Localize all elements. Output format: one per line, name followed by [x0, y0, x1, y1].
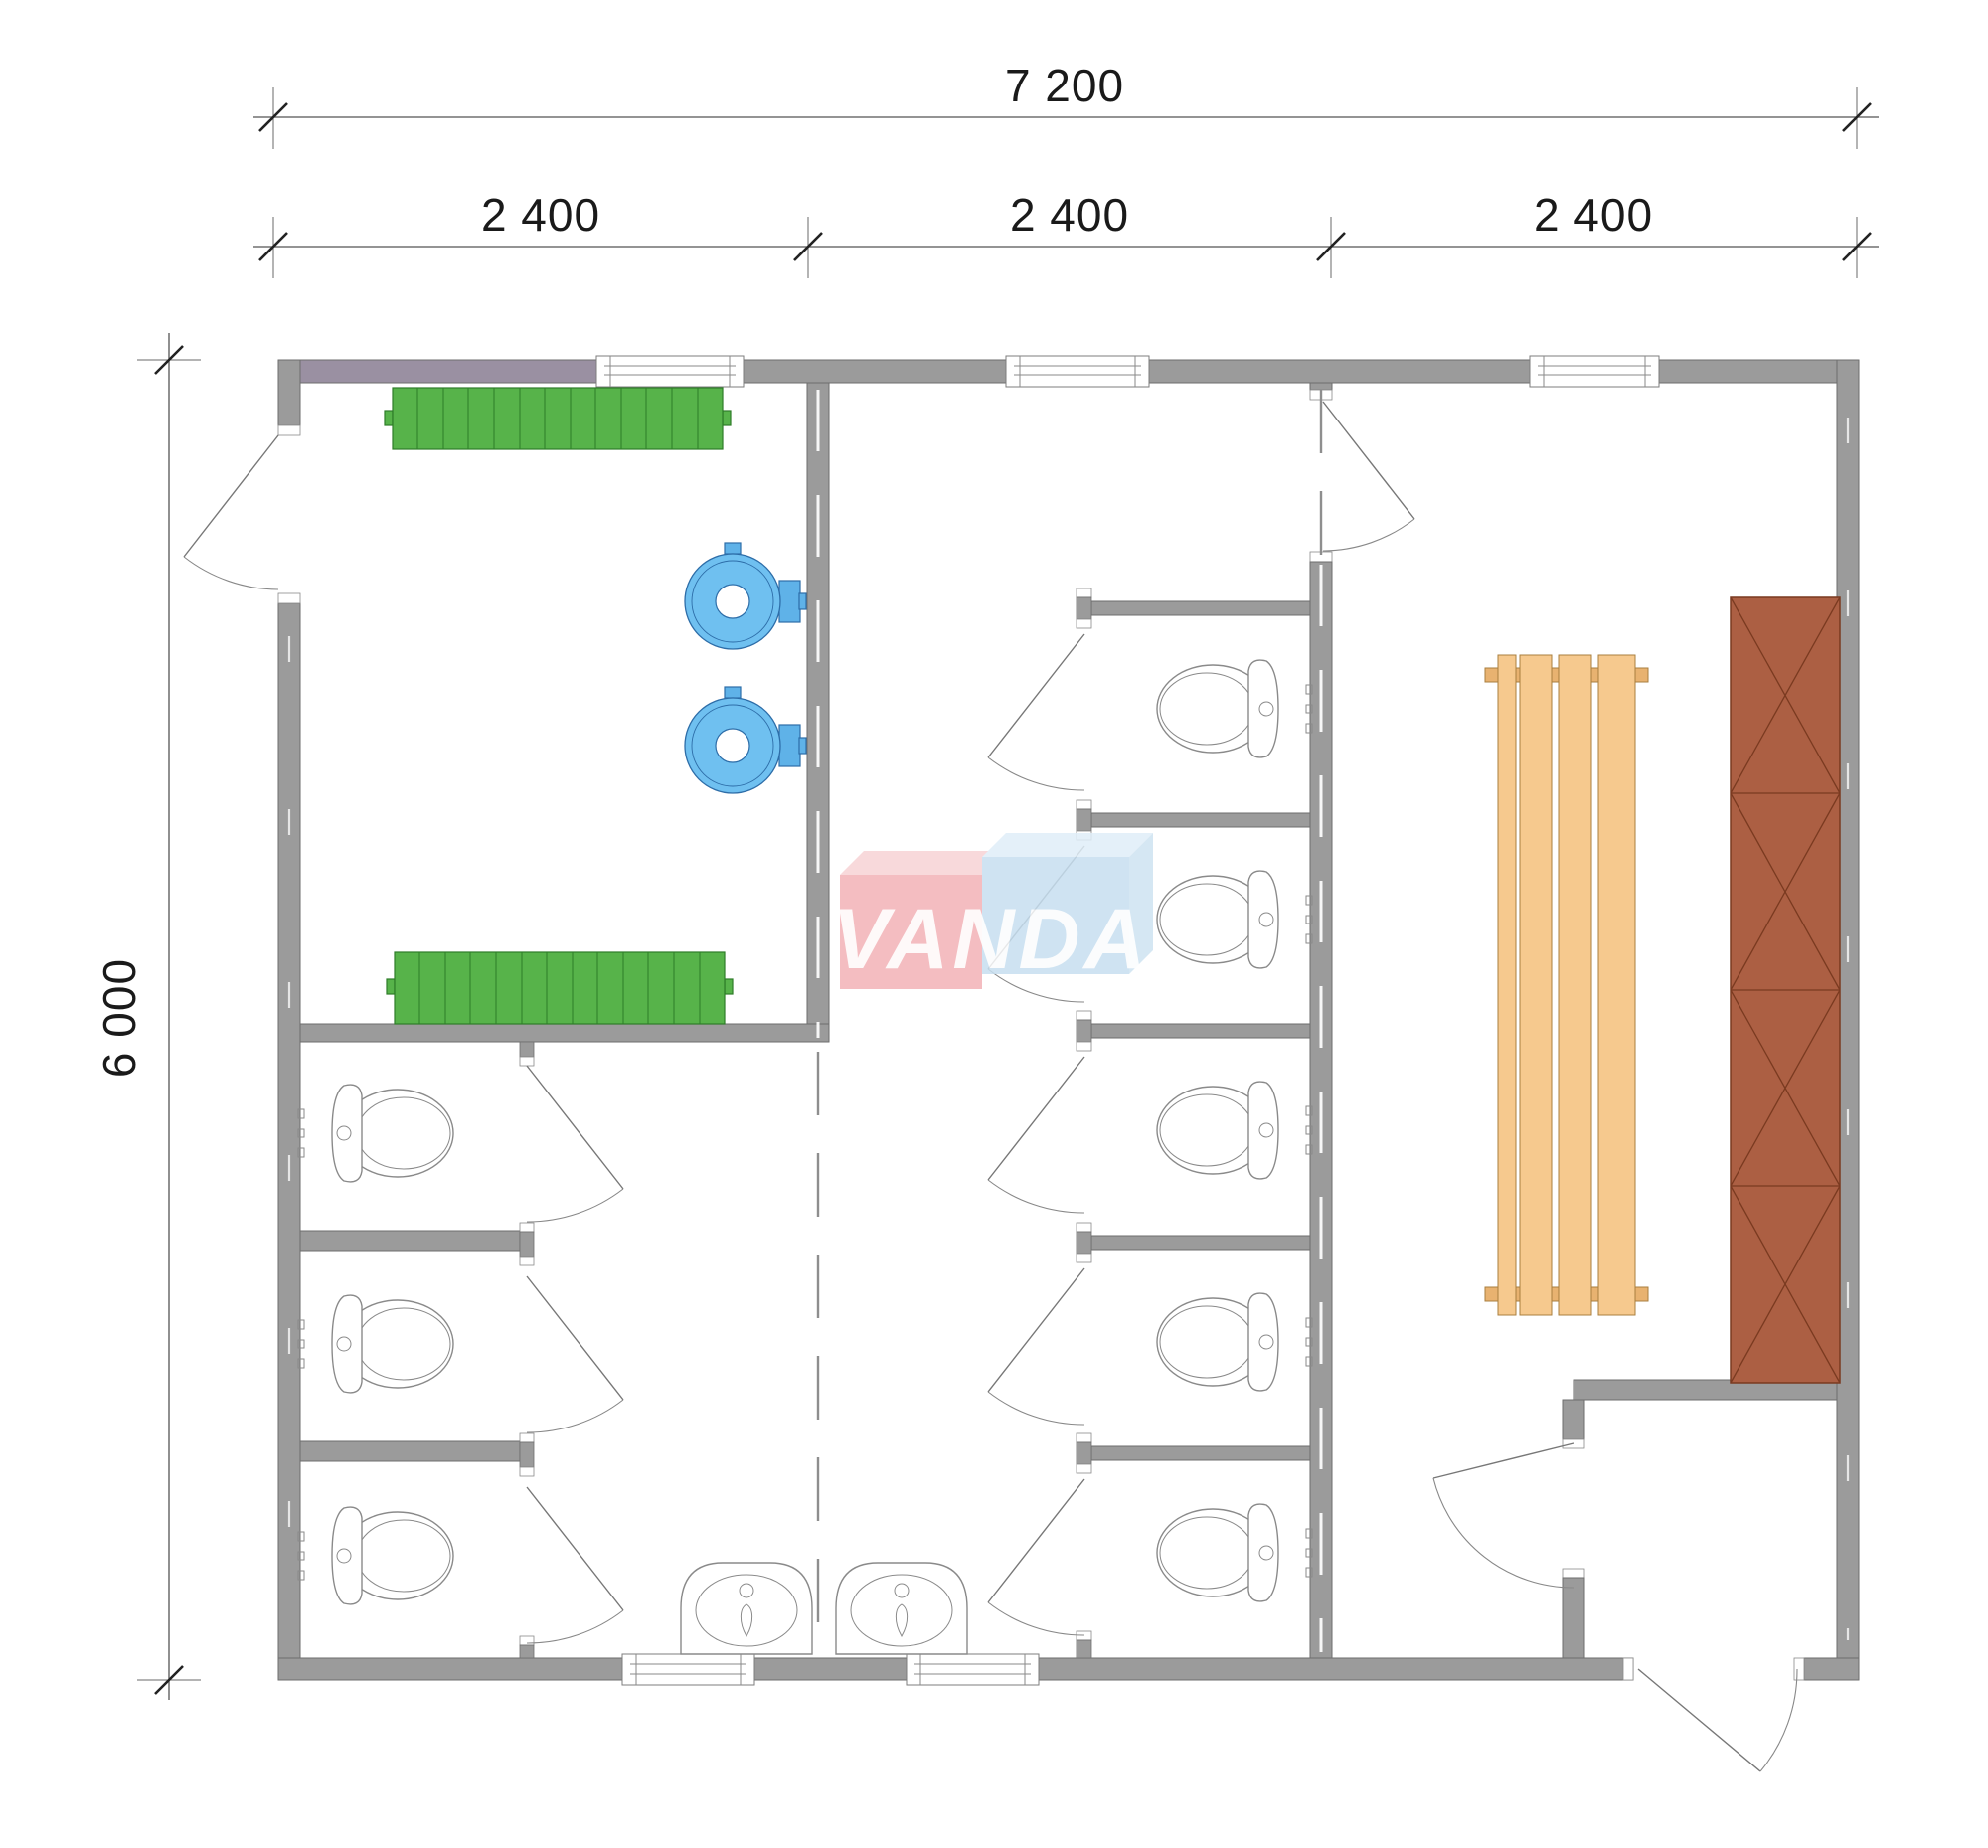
door-middle-stall-3 — [988, 1057, 1084, 1213]
watermark-text: VANDA — [832, 892, 1149, 987]
toilet-icon — [298, 1295, 453, 1393]
dim-label-bay-2: 2 400 — [1010, 189, 1129, 241]
window-bottom-2 — [907, 1654, 1039, 1685]
door-vestibule-interior — [1433, 1443, 1574, 1588]
top-wall-purple-segment — [278, 360, 596, 383]
door-drying-room-exterior — [184, 435, 278, 589]
toilet-icon — [298, 1507, 453, 1604]
toilet-icon — [1157, 871, 1312, 968]
toilet-icon — [298, 1085, 453, 1182]
toilet-icon — [1157, 1504, 1312, 1601]
washbasins — [685, 543, 806, 793]
dim-label-total-width: 7 200 — [1005, 60, 1124, 111]
floor-plan-canvas: 7 200 2 400 2 400 2 400 6 000 — [0, 0, 1988, 1848]
toilet-row-left — [298, 1085, 453, 1604]
door-middle-stall-1 — [988, 634, 1084, 790]
sink-icon — [836, 1563, 967, 1654]
door-left-stall-3 — [527, 1487, 623, 1643]
door-middle-stall-4 — [988, 1268, 1084, 1425]
green-bench-bottom — [387, 952, 733, 1024]
locker-cabinet — [1731, 597, 1840, 1383]
washbasin-icon — [685, 687, 806, 793]
door-main-entrance-exterior — [1638, 1669, 1797, 1771]
window-bottom-1 — [622, 1654, 754, 1685]
floor-plan-page: 7 200 2 400 2 400 2 400 6 000 — [0, 0, 1988, 1848]
sink-icon — [681, 1563, 812, 1654]
door-left-stall-2 — [527, 1276, 623, 1432]
toilet-icon — [1157, 1082, 1312, 1179]
door-middle-to-right-room — [1323, 402, 1414, 551]
watermark-pink-box-top — [840, 851, 1006, 875]
module-joint-lines — [818, 390, 1321, 1652]
dim-label-bay-1: 2 400 — [481, 189, 600, 241]
washbasin-icon — [685, 543, 806, 649]
window-top-1 — [596, 356, 744, 387]
dim-label-bay-3: 2 400 — [1534, 189, 1653, 241]
door-middle-stall-5 — [988, 1479, 1084, 1635]
divider-wall-right — [1310, 383, 1332, 390]
window-top-3 — [1530, 356, 1659, 387]
vestibule-walls — [1563, 1380, 1837, 1658]
green-bench-top — [385, 388, 731, 449]
sinks — [681, 1563, 967, 1654]
door-left-stall-1 — [527, 1066, 623, 1222]
window-top-2 — [1006, 356, 1149, 387]
dim-label-total-height: 6 000 — [93, 958, 145, 1078]
wood-bench — [1485, 655, 1648, 1315]
toilet-icon — [1157, 1293, 1312, 1391]
vanda-watermark: VANDA — [832, 833, 1153, 989]
toilet-icon — [1157, 660, 1312, 757]
watermark-blue-box-top — [982, 833, 1153, 857]
